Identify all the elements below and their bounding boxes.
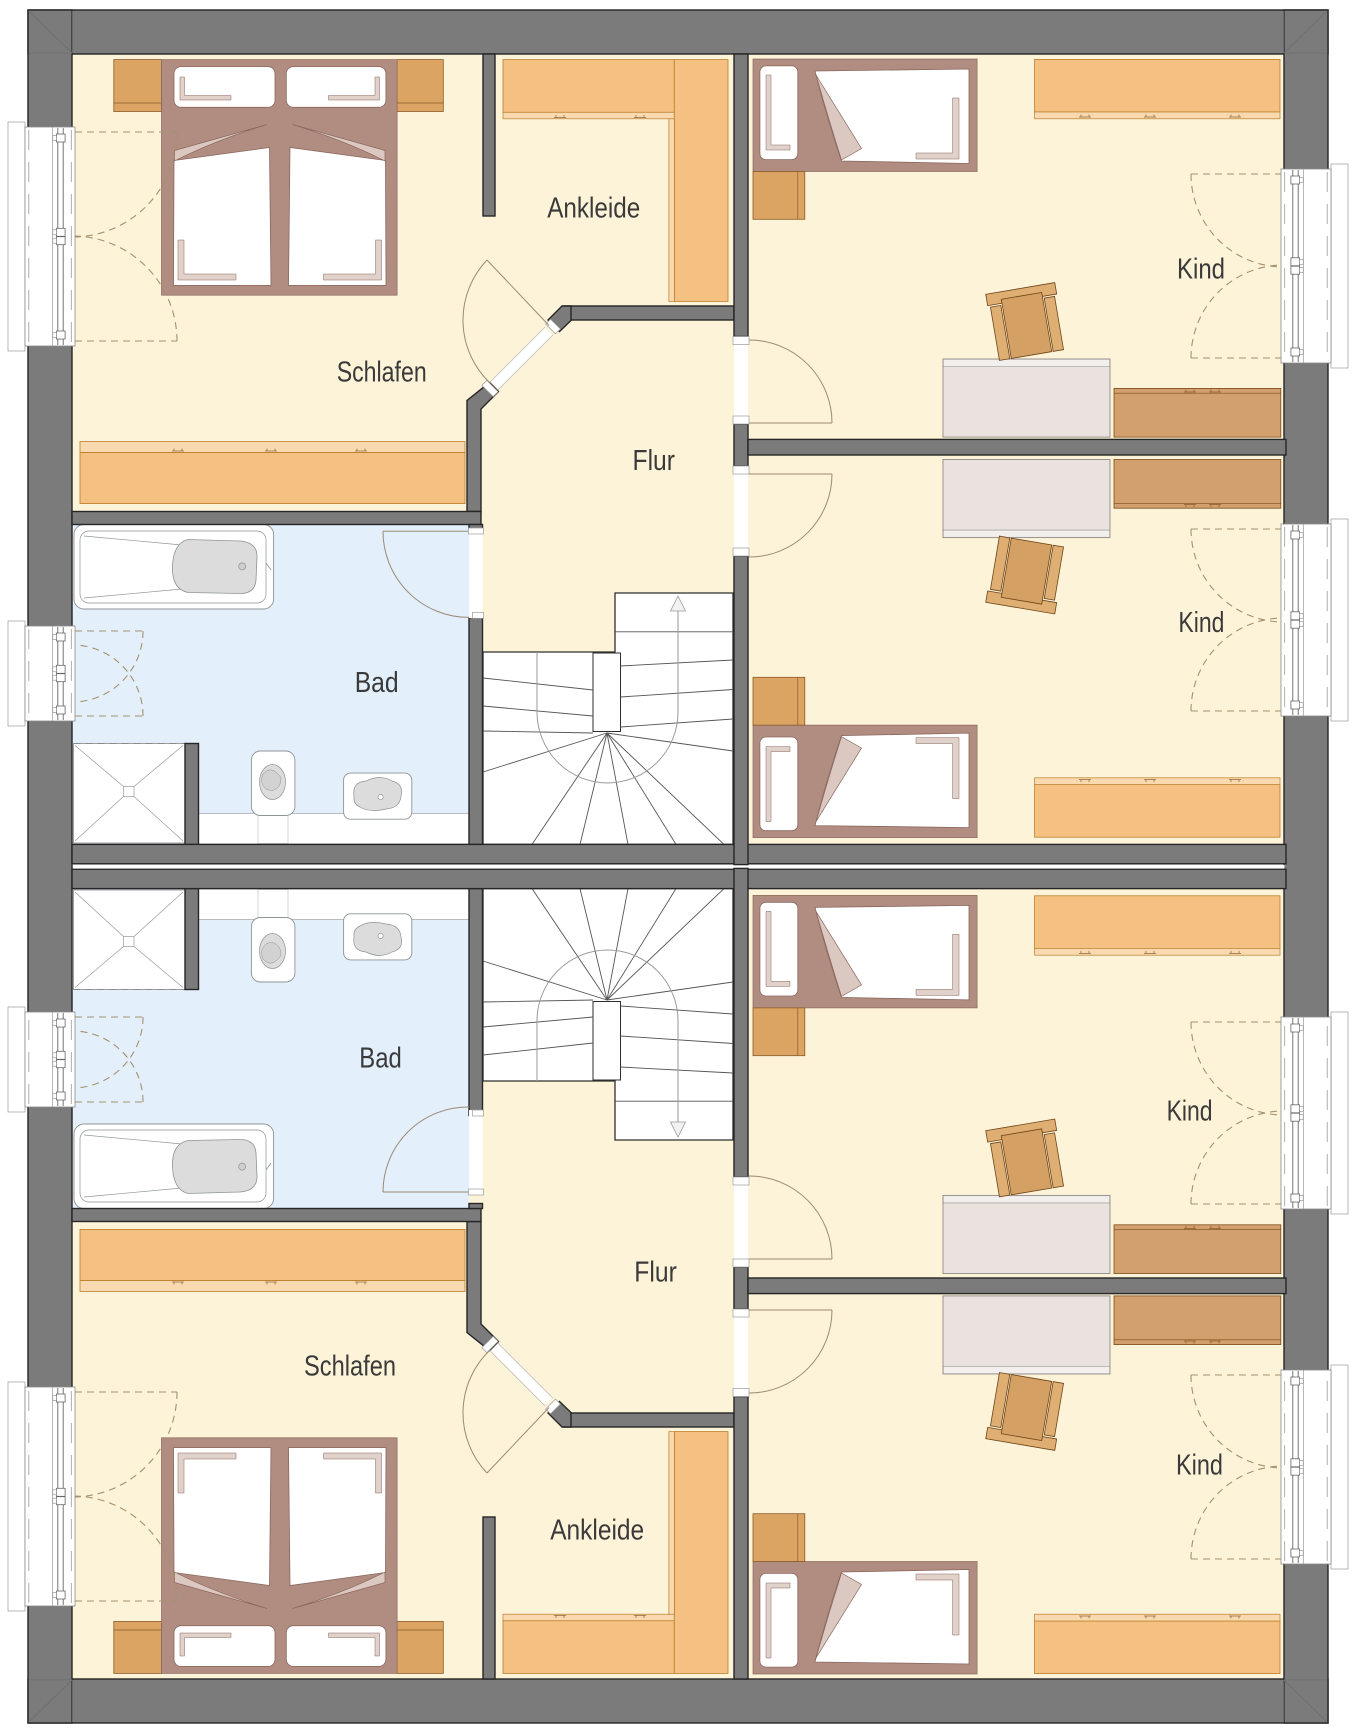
svg-text:Bad: Bad bbox=[355, 667, 399, 699]
svg-text:Ankleide: Ankleide bbox=[550, 1514, 644, 1546]
svg-text:Kind: Kind bbox=[1167, 1096, 1213, 1128]
svg-text:Flur: Flur bbox=[633, 445, 676, 477]
svg-text:Bad: Bad bbox=[359, 1043, 402, 1075]
svg-text:Kind: Kind bbox=[1177, 253, 1225, 285]
svg-text:Kind: Kind bbox=[1178, 607, 1224, 639]
svg-text:Schlafen: Schlafen bbox=[337, 356, 427, 388]
svg-text:Ankleide: Ankleide bbox=[547, 193, 640, 225]
svg-text:Kind: Kind bbox=[1176, 1449, 1223, 1481]
svg-text:Schlafen: Schlafen bbox=[304, 1351, 396, 1383]
svg-text:Flur: Flur bbox=[634, 1257, 677, 1289]
